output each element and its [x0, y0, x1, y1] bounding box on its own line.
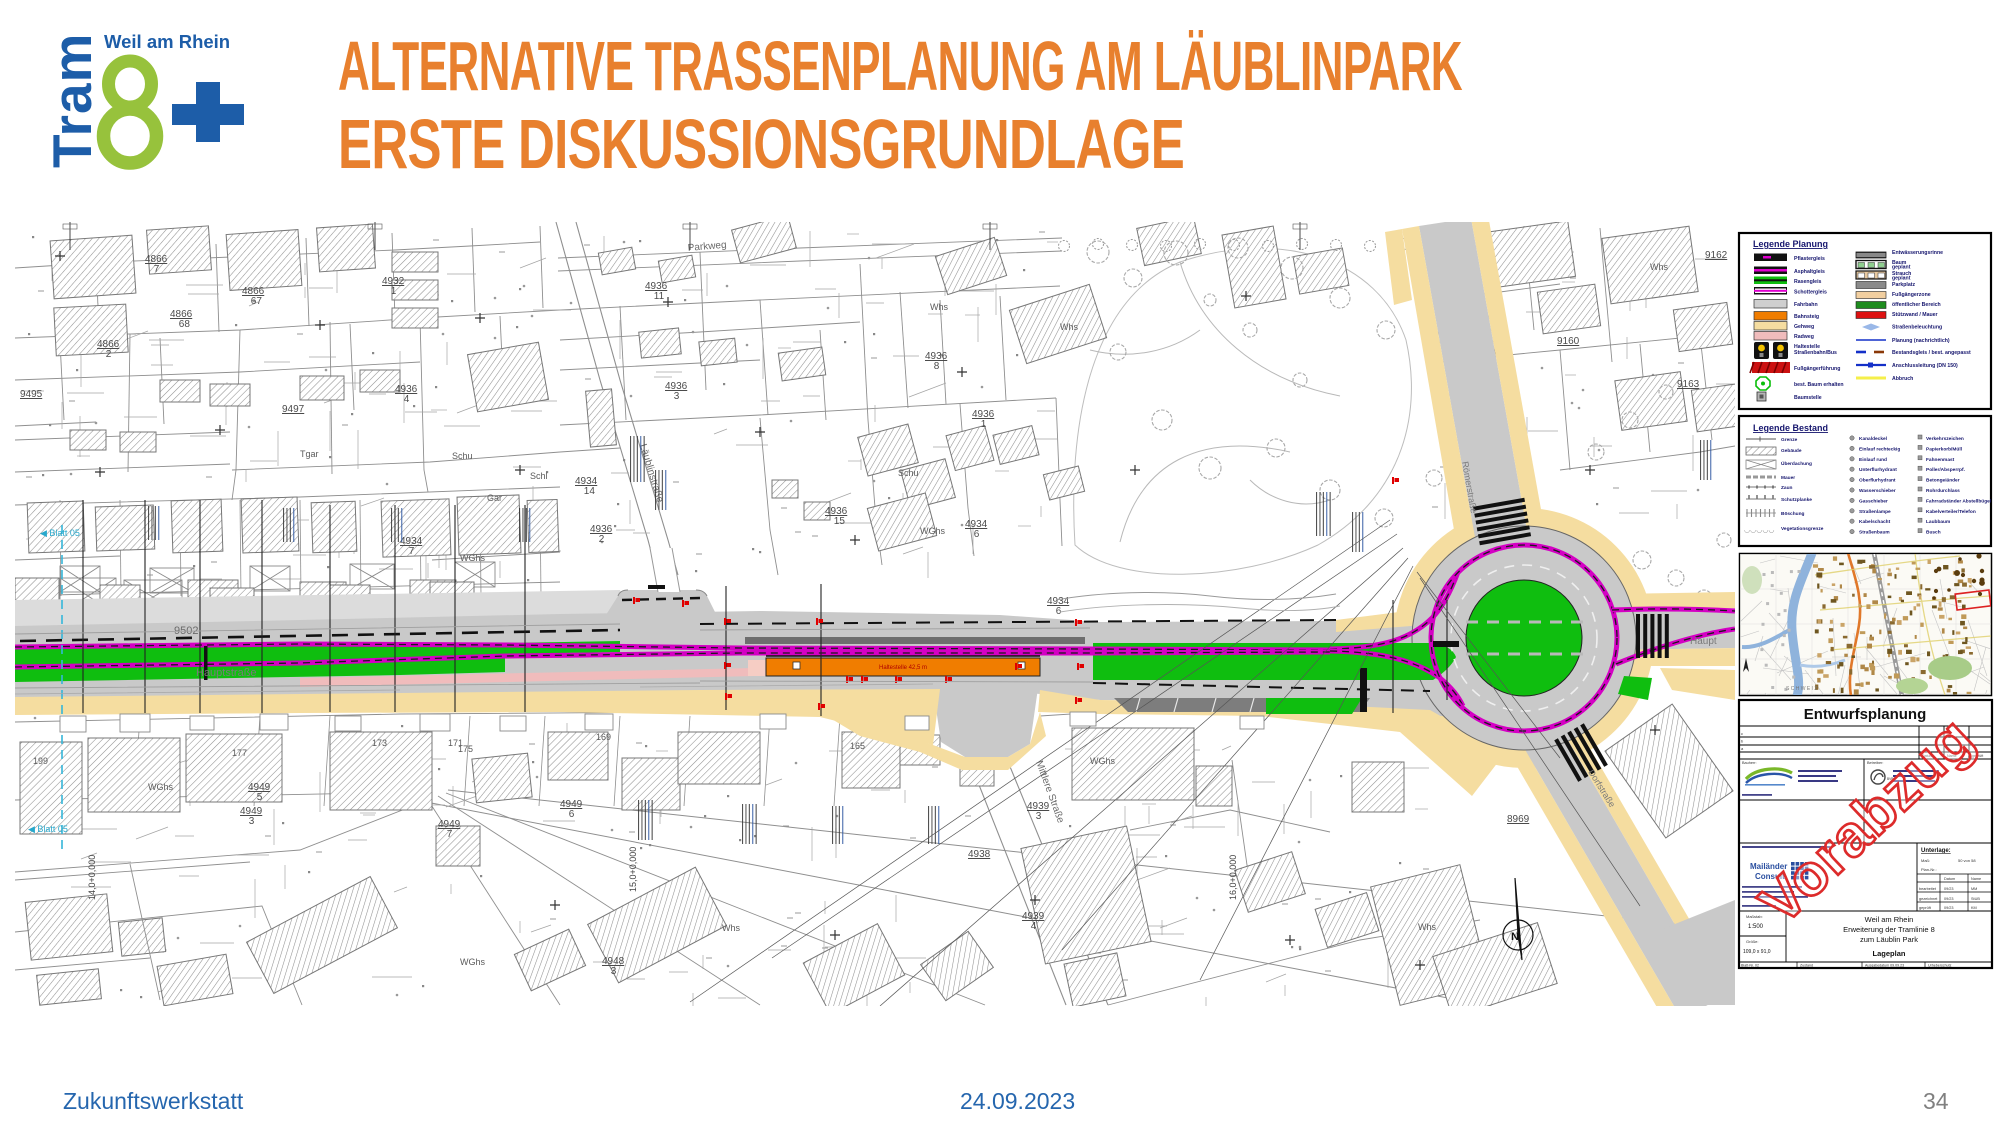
- svg-text:Weil am Rhein: Weil am Rhein: [1865, 915, 1914, 924]
- svg-text:Schu: Schu: [898, 468, 919, 478]
- svg-text:Asphaltgleis: Asphaltgleis: [1794, 269, 1825, 275]
- svg-text:Fußgängerführung: Fußgängerführung: [1794, 366, 1840, 372]
- svg-text:Parkplatz: Parkplatz: [1892, 282, 1915, 288]
- svg-text:geplant: geplant: [1892, 265, 1911, 271]
- svg-text:StUB: StUB: [1971, 897, 1980, 901]
- svg-text:4: 4: [404, 394, 410, 405]
- svg-text:09/23: 09/23: [1944, 906, 1954, 910]
- svg-text:Laubbaum: Laubbaum: [1926, 519, 1950, 525]
- svg-text:best. Baum erhalten: best. Baum erhalten: [1794, 382, 1844, 388]
- svg-text:09/23: 09/23: [1944, 897, 1954, 901]
- svg-text:Gehweg: Gehweg: [1794, 324, 1814, 330]
- svg-text:Whs: Whs: [722, 923, 741, 933]
- svg-text:Unterflurhydrant: Unterflurhydrant: [1859, 467, 1897, 473]
- svg-text:Whs: Whs: [930, 302, 949, 312]
- svg-text:7: 7: [154, 264, 160, 275]
- svg-text:Gar: Gar: [487, 493, 502, 503]
- svg-text:WGhs: WGhs: [460, 553, 486, 563]
- svg-text:S C H W E I Z: S C H W E I Z: [1786, 686, 1817, 692]
- svg-text:Größe:: Größe:: [1746, 939, 1758, 944]
- svg-text:Fahrradständer Abstellbügel: Fahrradständer Abstellbügel: [1926, 498, 1991, 504]
- svg-text:50 von 58: 50 von 58: [1958, 858, 1976, 863]
- svg-text:Zaun: Zaun: [1781, 485, 1793, 491]
- svg-text:Whs: Whs: [1650, 262, 1669, 272]
- svg-text:Mauer: Mauer: [1781, 475, 1795, 481]
- svg-text:9497: 9497: [282, 404, 305, 415]
- svg-text:Verkehrszeichen: Verkehrszeichen: [1926, 436, 1964, 442]
- svg-text:Zustand: Zustand: [1800, 964, 1813, 968]
- svg-text:Wasserschieber: Wasserschieber: [1859, 488, 1896, 494]
- svg-text:2: 2: [106, 349, 112, 360]
- svg-text:Maß:: Maß:: [1921, 858, 1930, 863]
- svg-text:Gasschieber: Gasschieber: [1859, 498, 1888, 504]
- svg-text:6: 6: [569, 809, 575, 820]
- svg-text:Läublinstraße: Läublinstraße: [637, 443, 665, 505]
- svg-text:3: 3: [674, 391, 680, 402]
- svg-text:16,0+0,000: 16,0+0,000: [1228, 855, 1238, 900]
- svg-text:165: 165: [850, 741, 865, 751]
- svg-text:4: 4: [1031, 921, 1037, 932]
- svg-text:◀ Blatt 05: ◀ Blatt 05: [40, 528, 80, 538]
- svg-text:9163: 9163: [1677, 379, 1700, 390]
- svg-text:Rasengleis: Rasengleis: [1794, 279, 1822, 285]
- svg-text:Poller/Absperrpf.: Poller/Absperrpf.: [1926, 467, 1965, 473]
- svg-text:Haupt: Haupt: [1690, 636, 1717, 647]
- svg-text:Bauherr:: Bauherr:: [1742, 761, 1757, 765]
- svg-text:Einlauf rund: Einlauf rund: [1859, 457, 1887, 463]
- svg-text:Fußgängerzone: Fußgängerzone: [1892, 292, 1931, 298]
- svg-text:Baumstelle: Baumstelle: [1794, 395, 1822, 401]
- svg-text:Legende Planung: Legende Planung: [1753, 239, 1828, 249]
- svg-text:Papierkorb/Müll: Papierkorb/Müll: [1926, 446, 1962, 452]
- svg-text:Straßenbeleuchtung: Straßenbeleuchtung: [1892, 325, 1942, 331]
- svg-text:Schl: Schl: [530, 471, 548, 481]
- svg-text:Kabelverteiler/Telefon: Kabelverteiler/Telefon: [1926, 509, 1976, 515]
- svg-text:4938: 4938: [968, 849, 991, 860]
- svg-text:9160: 9160: [1557, 336, 1580, 347]
- svg-text:Vegetationsgrenze: Vegetationsgrenze: [1781, 526, 1824, 532]
- svg-text:c: c: [1741, 731, 1743, 736]
- svg-text:Straßenbaum: Straßenbaum: [1859, 530, 1890, 536]
- svg-text:Ausgabedatum 09.09.23: Ausgabedatum 09.09.23: [1865, 964, 1904, 968]
- svg-text:Bestandsgleis / best. angepass: Bestandsgleis / best. angepasst: [1892, 350, 1971, 356]
- svg-text:Busch: Busch: [1926, 530, 1941, 536]
- svg-text:Whs: Whs: [1418, 922, 1437, 932]
- svg-text:173: 173: [372, 738, 387, 748]
- svg-text:Datum: Datum: [1944, 877, 1955, 881]
- svg-text:1: 1: [391, 286, 397, 297]
- svg-text:Blatt-Nr. 02: Blatt-Nr. 02: [1741, 964, 1759, 968]
- svg-text:Unterlage:: Unterlage:: [1921, 848, 1951, 854]
- svg-text:Stützwand / Mauer: Stützwand / Mauer: [1892, 312, 1938, 318]
- svg-text:7: 7: [409, 546, 415, 557]
- svg-text:15,0+0,000: 15,0+0,000: [628, 847, 638, 892]
- svg-text:171: 171: [448, 738, 463, 748]
- svg-text:WGhs: WGhs: [1090, 756, 1116, 766]
- svg-text:Anschlussleitung (DN 150): Anschlussleitung (DN 150): [1892, 363, 1958, 369]
- svg-text:WGhs: WGhs: [460, 957, 486, 967]
- svg-text:3: 3: [611, 966, 617, 977]
- svg-text:Parkweg: Parkweg: [687, 240, 727, 254]
- svg-text:öffentlicher Bereich: öffentlicher Bereich: [1892, 302, 1941, 308]
- svg-text:Plan-Nr.:: Plan-Nr.:: [1921, 867, 1937, 872]
- svg-text:Fahrbahn: Fahrbahn: [1794, 302, 1818, 308]
- svg-text:1:500: 1:500: [1748, 924, 1764, 930]
- svg-text:Whs: Whs: [1060, 322, 1079, 332]
- svg-text:15: 15: [834, 516, 846, 527]
- svg-text:Oberflurhydrant: Oberflurhydrant: [1859, 478, 1896, 484]
- svg-text:5: 5: [257, 792, 263, 803]
- svg-text:Bahnsteig: Bahnsteig: [1794, 314, 1819, 320]
- svg-text:14: 14: [584, 486, 596, 497]
- svg-text:Kanaldeckel: Kanaldeckel: [1859, 436, 1887, 442]
- svg-text:169: 169: [596, 732, 611, 742]
- svg-text:09/23: 09/23: [1944, 887, 1954, 891]
- svg-text:WGhs: WGhs: [148, 782, 174, 792]
- svg-text:Planung (nachrichtlich): Planung (nachrichtlich): [1892, 338, 1950, 344]
- svg-text:WGhs: WGhs: [920, 526, 946, 536]
- svg-text:geplant: geplant: [1892, 276, 1911, 282]
- svg-text:N: N: [1511, 931, 1519, 943]
- svg-text:Urheberschutz: Urheberschutz: [1928, 964, 1952, 968]
- svg-text:8969: 8969: [1507, 814, 1530, 825]
- svg-text:Fahnenmast: Fahnenmast: [1926, 457, 1955, 463]
- svg-text:Legende Bestand: Legende Bestand: [1753, 423, 1828, 433]
- svg-text:199: 199: [33, 756, 48, 766]
- svg-text:67: 67: [251, 296, 263, 307]
- svg-text:BetongeIänder: BetongeIänder: [1926, 478, 1960, 484]
- svg-text:Böschung: Böschung: [1781, 511, 1805, 517]
- svg-text:Radweg: Radweg: [1794, 334, 1814, 340]
- svg-text:bearbeitet: bearbeitet: [1919, 887, 1937, 891]
- svg-text:9495: 9495: [20, 389, 43, 400]
- svg-text:Schu: Schu: [452, 451, 473, 461]
- svg-text:KM: KM: [1971, 906, 1977, 910]
- svg-text:177: 177: [232, 748, 247, 758]
- svg-text:Maßstab:: Maßstab:: [1746, 914, 1763, 919]
- svg-text:Schottergleis: Schottergleis: [1794, 290, 1827, 296]
- svg-text:Hauptstraße: Hauptstraße: [196, 667, 257, 679]
- svg-text:Abbruch: Abbruch: [1892, 376, 1913, 382]
- svg-text:gezeichnet: gezeichnet: [1919, 897, 1938, 901]
- svg-text:Kabelschacht: Kabelschacht: [1859, 519, 1891, 525]
- svg-text:1: 1: [981, 419, 987, 430]
- svg-text:6: 6: [974, 529, 980, 540]
- svg-text:Pflastergleis: Pflastergleis: [1794, 256, 1825, 262]
- svg-text:geprüft: geprüft: [1919, 906, 1932, 910]
- svg-text:109,0 x 91,0: 109,0 x 91,0: [1743, 949, 1771, 955]
- svg-text:MM: MM: [1971, 887, 1977, 891]
- svg-text:Gebäude: Gebäude: [1781, 448, 1802, 454]
- svg-text:Entwurfsplanung: Entwurfsplanung: [1804, 706, 1927, 723]
- svg-text:8: 8: [934, 361, 940, 372]
- svg-text:3: 3: [1036, 811, 1042, 822]
- svg-text:Lageplan: Lageplan: [1873, 949, 1906, 958]
- svg-text:9162: 9162: [1705, 250, 1728, 261]
- svg-text:Straßenbahn/Bus: Straßenbahn/Bus: [1794, 350, 1837, 356]
- svg-text:Grenze: Grenze: [1781, 437, 1798, 443]
- svg-text:7: 7: [447, 829, 453, 840]
- svg-text:Rohrdurchlass: Rohrdurchlass: [1926, 488, 1960, 494]
- svg-text:zum Läublin Park: zum Läublin Park: [1860, 935, 1918, 944]
- svg-text:3: 3: [249, 816, 255, 827]
- svg-text:Entwässerungsrinne: Entwässerungsrinne: [1892, 250, 1943, 256]
- svg-text:11: 11: [654, 291, 665, 302]
- svg-text:Tgar: Tgar: [300, 449, 319, 459]
- svg-text:68: 68: [179, 319, 191, 330]
- svg-text:Schutzplanke: Schutzplanke: [1781, 497, 1812, 503]
- svg-text:Straßenlampe: Straßenlampe: [1859, 509, 1891, 515]
- svg-text:Einlauf rechteckig: Einlauf rechteckig: [1859, 446, 1900, 452]
- svg-text:2: 2: [599, 534, 605, 545]
- svg-text:Name: Name: [1971, 877, 1981, 881]
- svg-text:◀ Blatt 05: ◀ Blatt 05: [28, 824, 68, 834]
- svg-text:Erweiterung der Tramlinie 8: Erweiterung der Tramlinie 8: [1843, 925, 1935, 934]
- svg-text:Haltestelle 42,5 m: Haltestelle 42,5 m: [879, 665, 927, 671]
- svg-text:Überdachung: Überdachung: [1781, 460, 1812, 467]
- svg-text:◡◡◡◡◡: ◡◡◡◡◡: [1744, 527, 1775, 534]
- svg-text:14,0+0,000: 14,0+0,000: [87, 855, 97, 900]
